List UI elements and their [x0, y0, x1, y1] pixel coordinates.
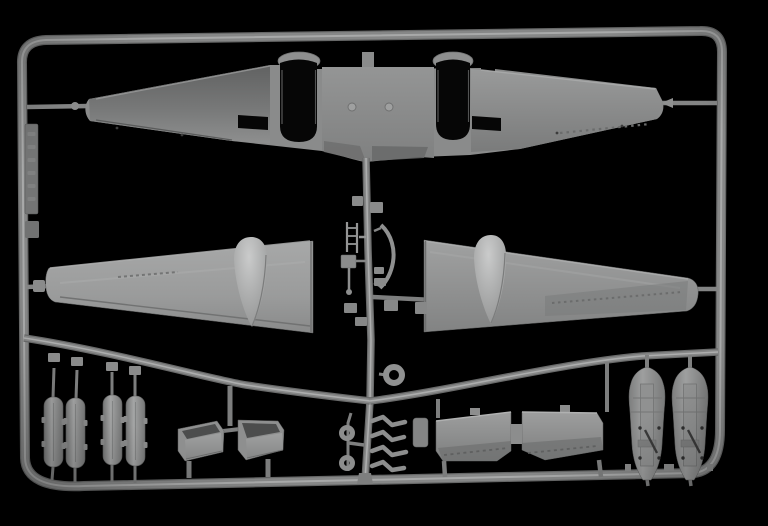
vignette-overlay — [0, 0, 768, 526]
photo-canvas: Rectangular sprue frame with rounded cor… — [0, 0, 768, 526]
